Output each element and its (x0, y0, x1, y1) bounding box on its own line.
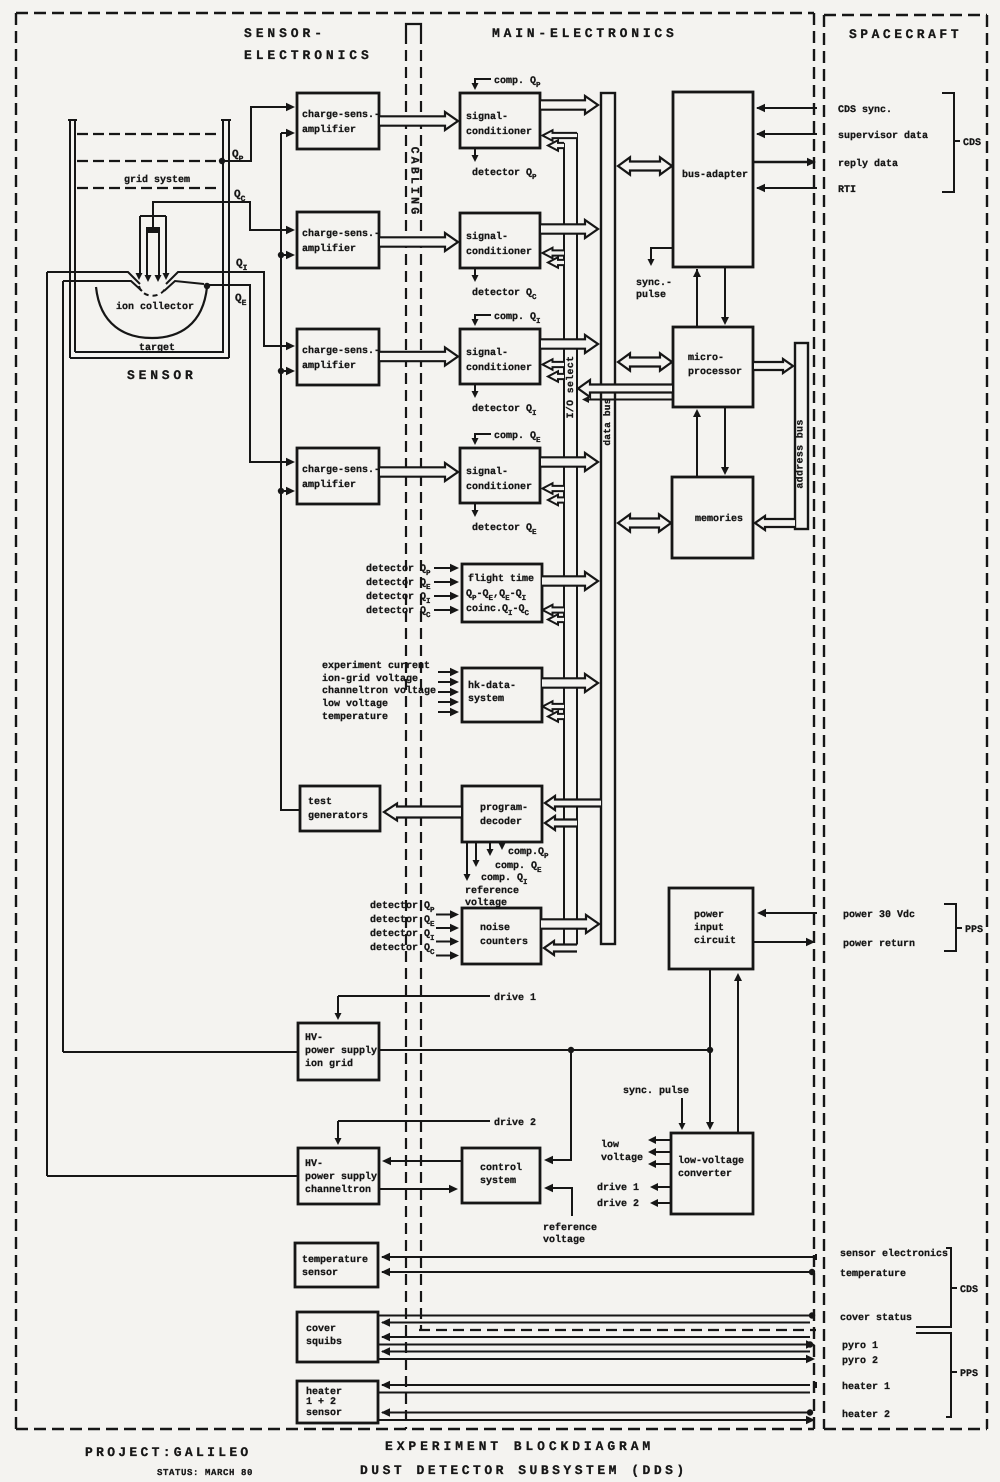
svg-text:sensor: sensor (306, 1408, 342, 1419)
svg-text:generators: generators (308, 811, 368, 822)
svg-text:circuit: circuit (694, 935, 736, 947)
svg-text:CDS sync.: CDS sync. (838, 105, 892, 116)
svg-text:signal-: signal- (466, 111, 508, 123)
svg-text:STATUS: MARCH 80: STATUS: MARCH 80 (157, 1468, 253, 1478)
svg-text:channeltron voltage: channeltron voltage (322, 685, 436, 697)
svg-text:MAIN-ELECTRONICS: MAIN-ELECTRONICS (492, 26, 678, 41)
svg-text:temperature: temperature (302, 1255, 368, 1266)
svg-text:input: input (694, 922, 724, 934)
svg-text:power supply: power supply (305, 1045, 377, 1057)
svg-text:target: target (139, 343, 175, 354)
svg-text:control: control (480, 1162, 522, 1174)
svg-text:CDS: CDS (963, 138, 981, 149)
svg-text:power: power (694, 910, 724, 921)
svg-text:pyro 1: pyro 1 (842, 1341, 878, 1352)
svg-text:sync.-: sync.- (636, 278, 672, 289)
svg-text:low-voltage: low-voltage (678, 1155, 744, 1167)
svg-text:RTI: RTI (838, 185, 856, 196)
svg-text:drive 2: drive 2 (597, 1198, 639, 1210)
svg-text:PPS: PPS (960, 1369, 978, 1380)
svg-text:PROJECT:GALILEO: PROJECT:GALILEO (85, 1445, 252, 1460)
svg-text:charge-sens.-: charge-sens.- (302, 464, 380, 476)
svg-text:charge-sens.-: charge-sens.- (302, 109, 380, 121)
svg-text:ion grid: ion grid (305, 1058, 353, 1070)
svg-text:ELECTRONICS: ELECTRONICS (244, 48, 373, 63)
svg-text:hk-data-: hk-data- (468, 680, 516, 692)
svg-text:flight time: flight time (468, 573, 534, 585)
svg-text:amplifier: amplifier (302, 360, 356, 372)
svg-text:signal-: signal- (466, 347, 508, 359)
svg-text:sensor: sensor (302, 1268, 338, 1279)
svg-text:channeltron: channeltron (305, 1184, 371, 1196)
svg-text:cover status: cover status (840, 1313, 912, 1324)
svg-text:micro-: micro- (688, 352, 724, 364)
svg-text:heater 2: heater 2 (842, 1409, 890, 1421)
svg-text:drive 1: drive 1 (494, 992, 536, 1004)
svg-text:supervisor data: supervisor data (838, 130, 928, 142)
svg-text:1 + 2: 1 + 2 (306, 1397, 336, 1408)
svg-text:program-: program- (480, 803, 528, 814)
svg-text:HV-: HV- (305, 1033, 323, 1044)
svg-text:address bus: address bus (795, 419, 807, 488)
svg-text:CDS: CDS (960, 1285, 978, 1296)
svg-text:temperature: temperature (322, 712, 388, 723)
svg-text:reply data: reply data (838, 158, 898, 170)
svg-text:cover: cover (306, 1324, 336, 1335)
svg-text:low: low (601, 1139, 619, 1151)
svg-text:processor: processor (688, 367, 742, 378)
svg-text:temperature: temperature (840, 1269, 906, 1280)
svg-text:heater 1: heater 1 (842, 1381, 890, 1393)
svg-text:pulse: pulse (636, 289, 666, 301)
svg-text:system: system (480, 1176, 516, 1187)
svg-text:sync. pulse: sync. pulse (623, 1085, 689, 1097)
svg-text:amplifier: amplifier (302, 243, 356, 255)
svg-text:experiment current: experiment current (322, 660, 430, 672)
svg-text:counters: counters (480, 937, 528, 948)
svg-text:charge-sens.-: charge-sens.- (302, 228, 380, 240)
svg-text:HV-: HV- (305, 1159, 323, 1170)
svg-text:power supply: power supply (305, 1171, 377, 1183)
svg-text:noise: noise (480, 922, 510, 934)
svg-text:conditioner: conditioner (466, 362, 532, 374)
svg-text:SENSOR: SENSOR (127, 368, 197, 383)
svg-text:data bus: data bus (602, 398, 613, 445)
svg-text:converter: converter (678, 1169, 732, 1180)
svg-text:grid system: grid system (124, 174, 190, 186)
svg-text:voltage: voltage (601, 1152, 643, 1164)
svg-text:test: test (308, 797, 332, 808)
svg-text:sensor electronics: sensor electronics (840, 1248, 948, 1260)
svg-text:bus-adapter: bus-adapter (682, 169, 748, 181)
svg-text:power return: power return (843, 939, 915, 950)
svg-text:amplifier: amplifier (302, 124, 356, 136)
svg-text:power 30 Vdc: power 30 Vdc (843, 909, 915, 921)
svg-text:conditioner: conditioner (466, 126, 532, 138)
svg-text:conditioner: conditioner (466, 246, 532, 258)
svg-text:PPS: PPS (965, 925, 983, 936)
svg-text:SPACECRAFT: SPACECRAFT (849, 27, 962, 42)
svg-text:CABLING: CABLING (408, 147, 421, 218)
svg-text:conditioner: conditioner (466, 481, 532, 493)
svg-text:system: system (468, 694, 504, 705)
svg-text:amplifier: amplifier (302, 479, 356, 491)
svg-text:ion-grid voltage: ion-grid voltage (322, 673, 418, 685)
svg-text:EXPERIMENT BLOCKDIAGRAM: EXPERIMENT BLOCKDIAGRAM (385, 1439, 654, 1454)
svg-text:squibs: squibs (306, 1336, 342, 1348)
svg-text:voltage: voltage (543, 1234, 585, 1246)
svg-text:DUST DETECTOR SUBSYSTEM (DDS): DUST DETECTOR SUBSYSTEM (DDS) (360, 1463, 688, 1478)
svg-text:charge-sens.-: charge-sens.- (302, 345, 380, 357)
svg-text:drive 1: drive 1 (597, 1182, 639, 1194)
svg-text:decoder: decoder (480, 816, 522, 828)
svg-text:I/O select: I/O select (565, 356, 576, 419)
svg-text:reference: reference (543, 1222, 597, 1234)
svg-text:reference: reference (465, 885, 519, 897)
svg-text:drive 2: drive 2 (494, 1117, 536, 1129)
svg-text:low voltage: low voltage (322, 698, 388, 710)
svg-text:signal-: signal- (466, 466, 508, 478)
svg-text:ion collector: ion collector (116, 301, 194, 313)
svg-text:pyro 2: pyro 2 (842, 1356, 878, 1367)
svg-text:signal-: signal- (466, 231, 508, 243)
svg-text:SENSOR-: SENSOR- (244, 26, 326, 41)
svg-text:memories: memories (695, 513, 743, 525)
